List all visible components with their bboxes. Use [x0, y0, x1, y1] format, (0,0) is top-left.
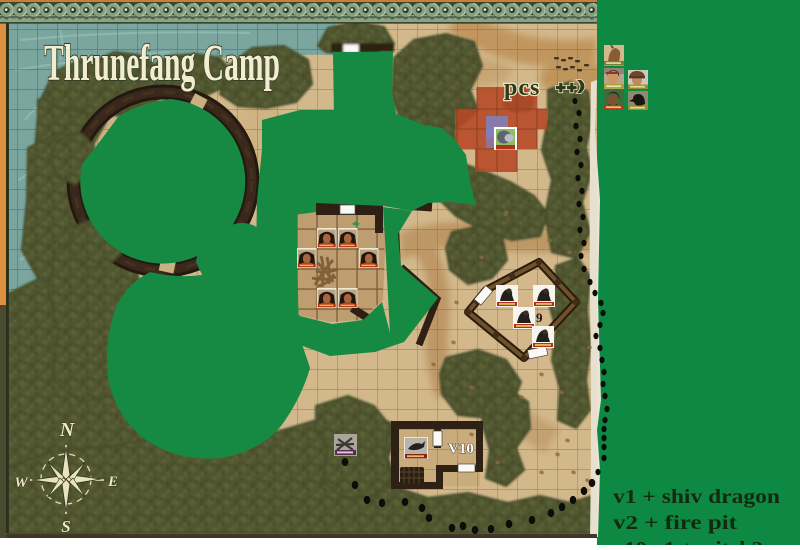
svg-text:Thrunefang Camp: Thrunefang Camp: [44, 35, 280, 92]
svg-text:pcs: pcs: [504, 75, 540, 101]
svg-text:v10 a1 + witch?: v10 a1 + witch?: [613, 538, 763, 545]
svg-text:v2 + fire pit: v2 + fire pit: [613, 512, 737, 534]
svg-text:E: E: [107, 474, 118, 490]
svg-text:v1 + shiv dragon: v1 + shiv dragon: [613, 486, 780, 508]
svg-text:N: N: [59, 419, 76, 441]
svg-text:S: S: [61, 517, 70, 536]
svg-text:9: 9: [536, 310, 543, 325]
svg-text:W: W: [14, 475, 29, 491]
svg-text:V10: V10: [448, 441, 474, 457]
